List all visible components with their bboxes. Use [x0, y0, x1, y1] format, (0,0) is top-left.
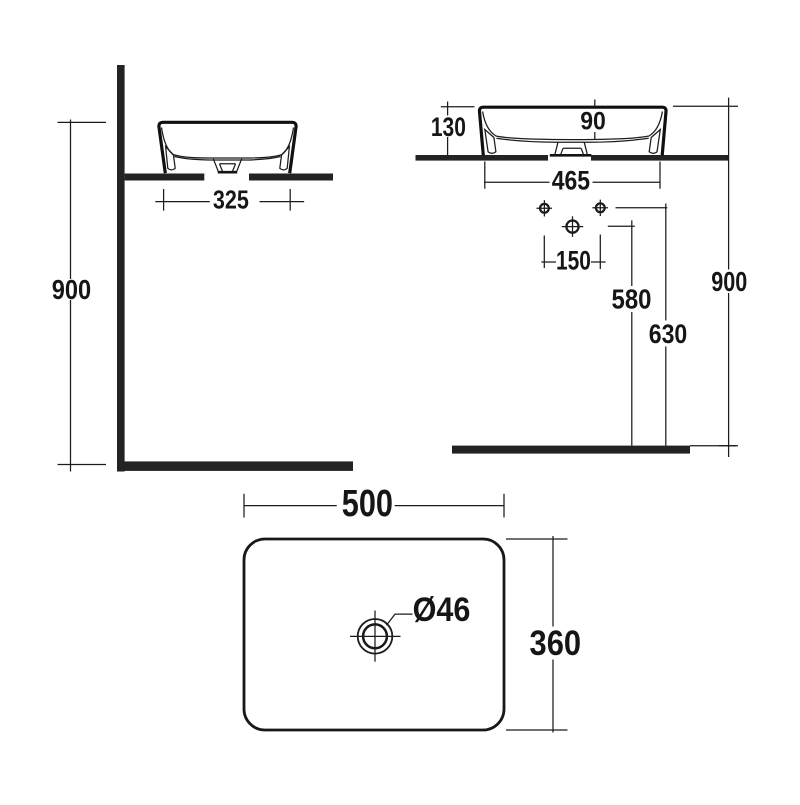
svg-text:90: 90: [580, 108, 606, 136]
svg-text:900: 900: [711, 266, 747, 297]
svg-text:900: 900: [52, 274, 91, 305]
svg-text:Ø46: Ø46: [413, 591, 471, 629]
svg-text:150: 150: [556, 246, 591, 276]
svg-text:465: 465: [552, 165, 590, 195]
svg-text:630: 630: [649, 319, 688, 349]
svg-text:360: 360: [530, 624, 582, 663]
svg-text:500: 500: [342, 483, 393, 525]
svg-text:325: 325: [213, 187, 249, 215]
svg-text:580: 580: [612, 283, 652, 314]
svg-text:130: 130: [431, 112, 466, 142]
